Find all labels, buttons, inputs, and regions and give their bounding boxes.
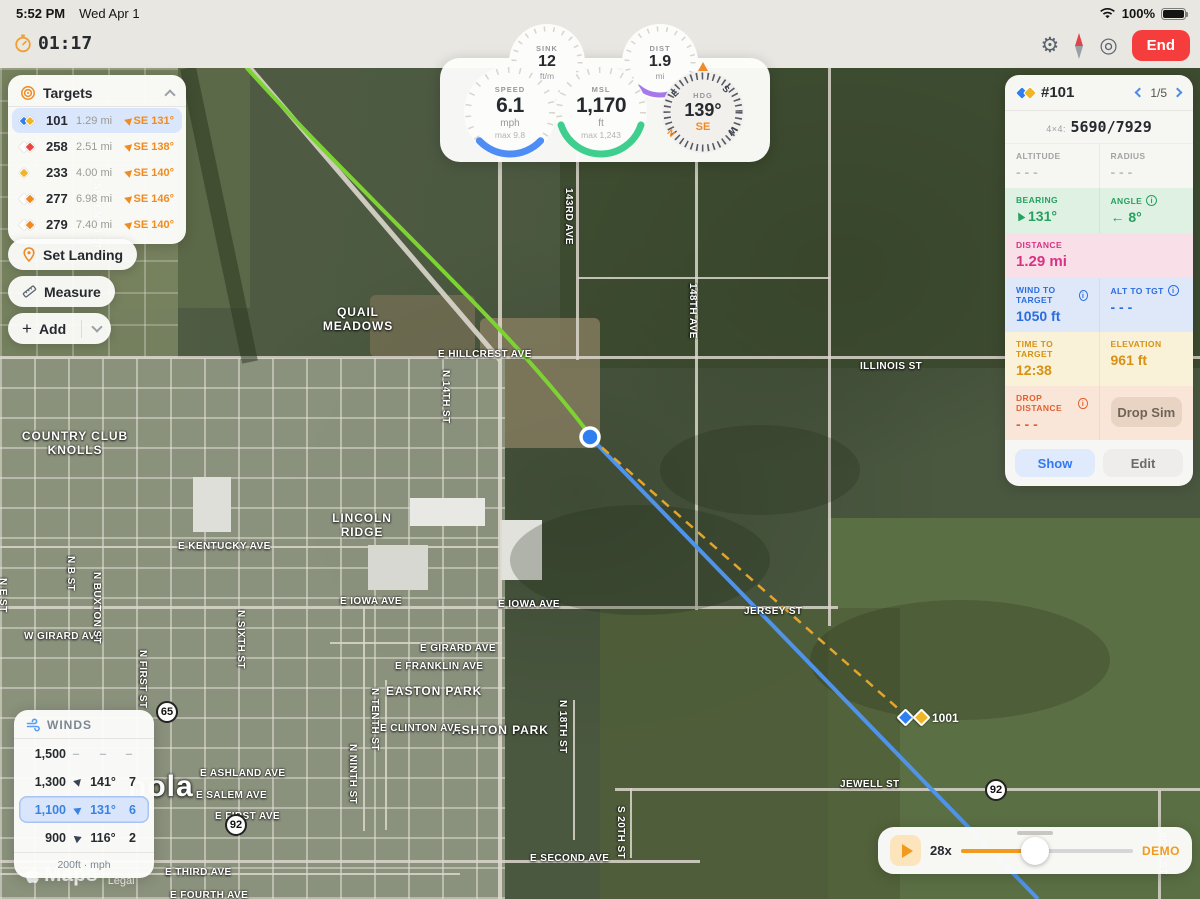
- wind-row-1300[interactable]: 1,300 141° 7: [19, 768, 149, 795]
- map-label-street: E HILLCREST AVE: [438, 349, 532, 360]
- dist-value: 1.9: [649, 53, 671, 71]
- target-diamond-icons: [20, 143, 46, 151]
- target-diamond-icons: [20, 221, 46, 229]
- target-distance: 1.29 mi: [76, 115, 124, 127]
- wind-arrow-icon: [71, 804, 81, 814]
- target-row-277[interactable]: 277 6.98 mi SE 146°: [12, 186, 182, 211]
- msl-label: MSL: [592, 85, 611, 94]
- angle-field: ANGLEi ← 8°: [1099, 188, 1194, 233]
- winds-panel: WINDS 1,500 – – – 1,300 141° 7 1,100 131…: [14, 710, 154, 878]
- sink-label: SINK: [536, 44, 558, 53]
- map-label-street: E FRANKLIN AVE: [395, 661, 483, 672]
- info-icon[interactable]: i: [1078, 398, 1087, 409]
- wind-row-1500[interactable]: 1,500 – – –: [19, 740, 149, 767]
- speed-unit: mph: [500, 118, 519, 129]
- info-icon[interactable]: i: [1146, 195, 1157, 206]
- current-position-dot: [581, 428, 599, 446]
- play-button[interactable]: [890, 835, 921, 866]
- map-label-area: ASHTON PARK: [452, 724, 549, 738]
- map-label-street: N E ST: [0, 578, 8, 613]
- map-label-street: E ASHLAND AVE: [200, 768, 285, 779]
- compass-needle-icon[interactable]: [1073, 33, 1085, 59]
- plus-icon: +: [22, 320, 32, 337]
- target-marker-label: 1001: [932, 711, 959, 725]
- map-label-street: N FIRST ST: [137, 650, 148, 708]
- target-distance: 4.00 mi: [76, 167, 124, 179]
- target-id: 277: [46, 191, 76, 206]
- target-row-279[interactable]: 279 7.40 mi SE 140°: [12, 212, 182, 237]
- map-label-street: N 14TH ST: [440, 370, 451, 424]
- time-to-target-field: TIME TO TARGET 12:38: [1005, 332, 1099, 386]
- map-label-street: S 20TH ST: [615, 806, 626, 859]
- playback-slider[interactable]: [961, 849, 1133, 853]
- highway-shield-65: 65: [156, 701, 178, 723]
- info-icon[interactable]: i: [1079, 290, 1088, 301]
- ruler-icon: [22, 284, 37, 299]
- target-id: 101: [46, 113, 76, 128]
- flight-timer[interactable]: 01:17: [14, 33, 92, 54]
- target-diamond-icons: [20, 169, 46, 177]
- collapse-chevron-icon[interactable]: [164, 89, 175, 100]
- altitude-field: ALTITUDE - - -: [1005, 144, 1099, 188]
- winds-title: WINDS: [47, 718, 92, 732]
- target-bearing: SE 138°: [124, 141, 174, 153]
- wind-arrow-icon: [72, 777, 81, 786]
- add-divider: [81, 320, 82, 338]
- elevation-field: ELEVATION 961 ft: [1099, 332, 1194, 386]
- play-icon: [902, 844, 913, 858]
- map-label-street: E FOURTH AVE: [170, 890, 248, 899]
- map-label-street: E GIRARD AVE: [420, 643, 496, 654]
- hdg-label: HDG: [693, 91, 713, 100]
- highway-shield-92: 92: [985, 779, 1007, 801]
- wind-row-900[interactable]: 900 116° 2: [19, 824, 149, 851]
- hdg-value: 139°: [684, 100, 721, 121]
- map-label-street: JEWELL ST: [840, 779, 900, 790]
- map-label-street: ILLINOIS ST: [860, 361, 922, 372]
- set-landing-button[interactable]: Set Landing: [8, 239, 137, 270]
- map-label-street: 143RD AVE: [563, 188, 574, 245]
- target-id: 233: [46, 165, 76, 180]
- end-button[interactable]: End: [1132, 30, 1190, 61]
- target-diamond-icons: [20, 117, 46, 125]
- date: Wed Apr 1: [79, 6, 139, 21]
- dist-label: DIST: [649, 44, 670, 53]
- wifi-icon: [1099, 8, 1116, 20]
- map-label-street: E CLINTON AVE: [380, 723, 461, 734]
- winds-units: 200ft · mph: [14, 852, 154, 878]
- map-label-street: E IOWA AVE: [498, 599, 560, 610]
- map-label-area: COUNTRY CLUB KNOLLS: [10, 430, 140, 458]
- status-left: 5:52 PMWed Apr 1: [16, 6, 140, 21]
- info-icon[interactable]: i: [1168, 285, 1179, 296]
- edit-button[interactable]: Edit: [1103, 449, 1183, 477]
- wind-to-target-field: WIND TO TARGETi 1050 ft: [1005, 278, 1099, 332]
- drop-distance-field: DROP DISTANCEi - - -: [1005, 386, 1099, 440]
- map-pin-icon: [22, 247, 36, 262]
- bearing-arrow-icon: [122, 142, 131, 152]
- map-label-street: 148TH AVE: [687, 283, 698, 339]
- map-label-street: N B ST: [65, 556, 76, 591]
- target-distance: 2.51 mi: [76, 141, 124, 153]
- map-label-street: N NINTH ST: [347, 744, 358, 804]
- msl-gauge: MSL 1,170 ft max 1,243: [551, 62, 651, 162]
- status-right: 100%: [1099, 6, 1186, 21]
- target-bearing: SE 131°: [124, 115, 174, 127]
- drag-handle[interactable]: [1017, 831, 1053, 835]
- speed-gauge: SPEED 6.1 mph max 9.8: [460, 62, 560, 162]
- map-label-street: E IOWA AVE: [340, 596, 402, 607]
- target-row-233[interactable]: 233 4.00 mi SE 140°: [12, 160, 182, 185]
- heading-pointer-icon: [698, 62, 708, 71]
- highway-shield-92: 92: [225, 814, 247, 836]
- battery-percent: 100%: [1122, 6, 1155, 21]
- hdg-cardinal: SE: [696, 121, 711, 133]
- drop-sim-cell: Drop Sim: [1099, 386, 1194, 440]
- clock: 5:52 PM: [16, 6, 65, 21]
- targets-panel: Targets 101 1.29 mi SE 131° 258 2.51 mi …: [8, 75, 186, 244]
- target-bearing: SE 146°: [124, 193, 174, 205]
- speed-max: max 9.8: [495, 130, 525, 140]
- bearing-arrow-icon: [122, 194, 131, 204]
- settings-gear-icon[interactable]: ⚙: [1041, 35, 1060, 56]
- msl-unit: ft: [598, 118, 604, 129]
- targets-title: Targets: [43, 85, 159, 101]
- map-label-street: N SIXTH ST: [235, 610, 246, 669]
- target-diamond-icons: [20, 195, 46, 203]
- map-label-area: QUAIL MEADOWS: [312, 306, 404, 334]
- map-label-area: LINCOLN RIDGE: [316, 512, 408, 540]
- map-label-street: N TENTH ST: [369, 688, 380, 751]
- target-distance: 6.98 mi: [76, 193, 124, 205]
- playback-speed[interactable]: 28x: [930, 843, 952, 858]
- wind-icon: [26, 718, 40, 732]
- map-label-area: EASTON PARK: [386, 685, 482, 699]
- target-bearing: SE 140°: [124, 167, 174, 179]
- playback-panel: 28x DEMO: [878, 827, 1192, 874]
- pager-count: 1/5: [1150, 86, 1167, 100]
- show-button[interactable]: Show: [1015, 449, 1095, 477]
- bearing-field: BEARING 131°: [1005, 188, 1099, 233]
- speed-label: SPEED: [495, 85, 525, 94]
- map-label-street: E SALEM AVE: [196, 790, 267, 801]
- demo-badge: DEMO: [1142, 844, 1180, 858]
- target-bearing: SE 140°: [124, 219, 174, 231]
- target-row-101[interactable]: 101 1.29 mi SE 131°: [12, 108, 182, 133]
- next-target-chevron[interactable]: [1173, 88, 1183, 98]
- stopwatch-icon: [14, 34, 32, 53]
- prev-target-chevron[interactable]: [1135, 88, 1145, 98]
- bearing-arrow-icon: [122, 220, 131, 230]
- add-button[interactable]: + Add: [8, 313, 111, 344]
- add-dropdown-chevron-icon[interactable]: [91, 321, 102, 332]
- msl-value: 1,170: [576, 94, 626, 118]
- distance-field: DISTANCE 1.29 mi: [1005, 233, 1193, 278]
- radius-field: RADIUS - - -: [1099, 144, 1194, 188]
- map-label-street: E THIRD AVE: [165, 867, 232, 878]
- target-detail-panel: #101 1/5 4×4: 5690/7929 ALTITUDE - - - R…: [1005, 75, 1193, 486]
- map-label-street: N BUXTON ST: [91, 572, 102, 644]
- bullseye-icon: [20, 85, 36, 101]
- bearing-arrow-icon: [122, 116, 131, 126]
- detail-target-id: #101: [1041, 84, 1130, 101]
- map-label-street: E KENTUCKY AVE: [178, 541, 271, 552]
- grid-reference: 4×4: 5690/7929: [1005, 111, 1193, 144]
- bearing-up-arrow-icon: [1015, 211, 1026, 222]
- speed-value: 6.1: [496, 94, 524, 118]
- target-distance: 7.40 mi: [76, 219, 124, 231]
- target-id: 258: [46, 139, 76, 154]
- target-id: 279: [46, 217, 76, 232]
- map-label-street: E SECOND AVE: [530, 853, 609, 864]
- locate-me-icon[interactable]: ◎: [1099, 35, 1117, 56]
- target-row-258[interactable]: 258 2.51 mi SE 138°: [12, 134, 182, 159]
- bearing-arrow-icon: [122, 168, 131, 178]
- detail-diamond-icons: [1017, 88, 1035, 98]
- hdg-compass: HDG 139° SE: [661, 70, 745, 154]
- drop-sim-button[interactable]: Drop Sim: [1111, 397, 1183, 427]
- slider-thumb[interactable]: [1021, 837, 1049, 865]
- map-label-street: N 18TH ST: [557, 700, 568, 754]
- alt-to-tgt-field: ALT TO TGTi - - -: [1099, 278, 1194, 332]
- wind-row-1100[interactable]: 1,100 131° 6: [19, 796, 149, 823]
- battery-icon: [1161, 8, 1186, 20]
- measure-button[interactable]: Measure: [8, 276, 115, 307]
- wind-arrow-icon: [71, 832, 81, 843]
- map-label-street: JERSEY ST: [744, 606, 802, 617]
- msl-max: max 1,243: [581, 130, 621, 140]
